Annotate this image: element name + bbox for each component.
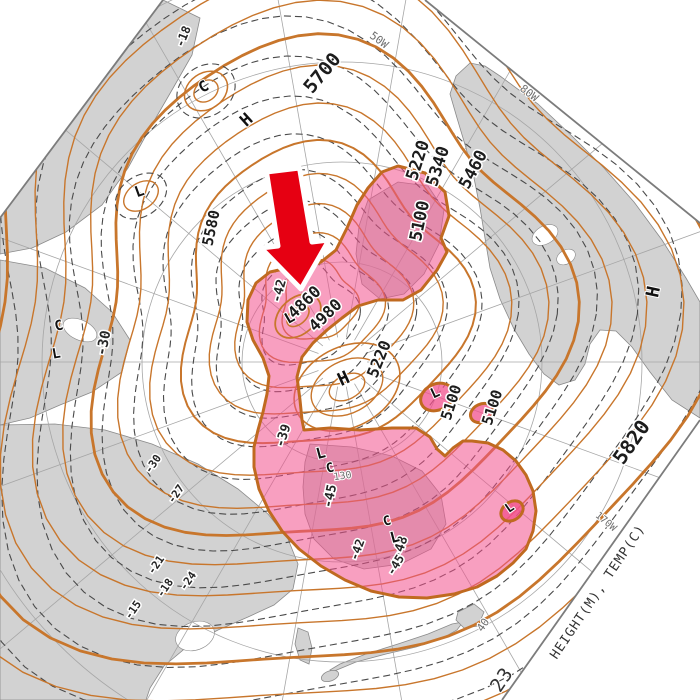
weather-map-stage: 5700558052205340546051004860498052205100… — [0, 0, 700, 700]
upper-air-chart-500hpa: 5700558052205340546051004860498052205100… — [0, 0, 700, 700]
